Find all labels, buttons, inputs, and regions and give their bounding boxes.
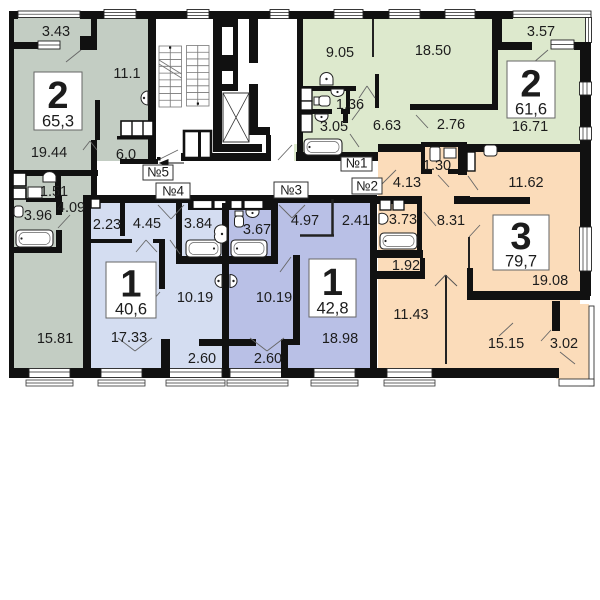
svg-text:1.36: 1.36 (336, 97, 364, 113)
svg-text:№1: №1 (346, 156, 368, 171)
svg-text:4.09: 4.09 (57, 200, 85, 216)
svg-text:11.1: 11.1 (113, 66, 140, 82)
svg-text:2.76: 2.76 (437, 117, 465, 133)
svg-text:3.67: 3.67 (243, 222, 271, 238)
svg-text:1: 1 (322, 262, 343, 304)
svg-text:1.30: 1.30 (423, 158, 451, 174)
svg-text:3.73: 3.73 (389, 212, 417, 228)
svg-text:79,7: 79,7 (505, 253, 537, 271)
svg-text:3.57: 3.57 (527, 24, 555, 40)
svg-text:4.45: 4.45 (133, 216, 161, 232)
svg-text:8.31: 8.31 (437, 213, 465, 229)
svg-text:11.43: 11.43 (393, 307, 428, 323)
svg-text:1: 1 (120, 264, 141, 306)
svg-text:2.41: 2.41 (342, 213, 370, 229)
svg-text:3.96: 3.96 (24, 208, 52, 224)
svg-text:№3: №3 (280, 183, 302, 198)
svg-text:2.60: 2.60 (188, 351, 216, 367)
svg-text:15.81: 15.81 (37, 331, 73, 347)
svg-text:4.97: 4.97 (291, 213, 319, 229)
svg-text:17.33: 17.33 (111, 330, 147, 346)
svg-text:3.43: 3.43 (42, 24, 70, 40)
svg-text:18.98: 18.98 (322, 331, 358, 347)
svg-text:19.44: 19.44 (31, 145, 67, 161)
svg-text:3.02: 3.02 (550, 336, 578, 352)
svg-text:42,8: 42,8 (316, 300, 348, 318)
svg-text:№5: №5 (147, 165, 169, 180)
svg-text:65,3: 65,3 (42, 113, 74, 131)
svg-text:10.19: 10.19 (256, 290, 292, 306)
svg-text:6.0: 6.0 (116, 147, 136, 163)
svg-text:3.84: 3.84 (184, 216, 212, 232)
svg-text:40,6: 40,6 (115, 301, 147, 319)
svg-text:10.19: 10.19 (177, 290, 213, 306)
svg-text:61,6: 61,6 (515, 101, 547, 119)
svg-text:4.13: 4.13 (393, 175, 421, 191)
svg-text:16.71: 16.71 (512, 119, 548, 135)
svg-text:18.50: 18.50 (415, 43, 451, 59)
svg-text:1.92: 1.92 (392, 258, 420, 274)
svg-text:19.08: 19.08 (532, 273, 568, 289)
svg-text:2: 2 (520, 63, 541, 105)
svg-text:6.63: 6.63 (373, 118, 401, 134)
svg-text:11.62: 11.62 (508, 175, 543, 191)
svg-text:9.05: 9.05 (326, 45, 354, 61)
svg-text:1.51: 1.51 (40, 184, 68, 200)
svg-text:2.23: 2.23 (93, 217, 121, 233)
svg-text:№4: №4 (162, 184, 184, 199)
svg-text:3.05: 3.05 (320, 119, 348, 135)
svg-text:2: 2 (47, 75, 68, 117)
svg-text:15.15: 15.15 (488, 336, 524, 352)
svg-text:2.60: 2.60 (254, 351, 282, 367)
svg-text:№2: №2 (356, 179, 378, 194)
